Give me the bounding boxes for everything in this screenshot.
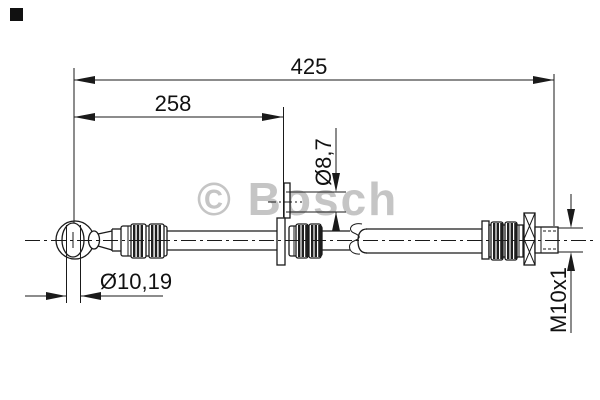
registration-mark xyxy=(10,8,23,21)
dim-overall-length-label: 425 xyxy=(291,54,328,79)
dim-banjo-eye-label: Ø10,19 xyxy=(100,269,172,294)
bosch-watermark: © Bosch xyxy=(197,173,398,225)
dimension-thread: M10x1 xyxy=(546,194,583,333)
serrated-washer xyxy=(524,213,535,265)
dim-bracket-hole-label: Ø8,7 xyxy=(311,138,336,186)
dim-intermediate-length-label: 258 xyxy=(155,91,192,116)
technical-drawing-canvas: © Bosch xyxy=(0,0,600,400)
brake-hose-drawing: © Bosch xyxy=(0,0,600,400)
dim-thread-label: M10x1 xyxy=(546,267,571,333)
